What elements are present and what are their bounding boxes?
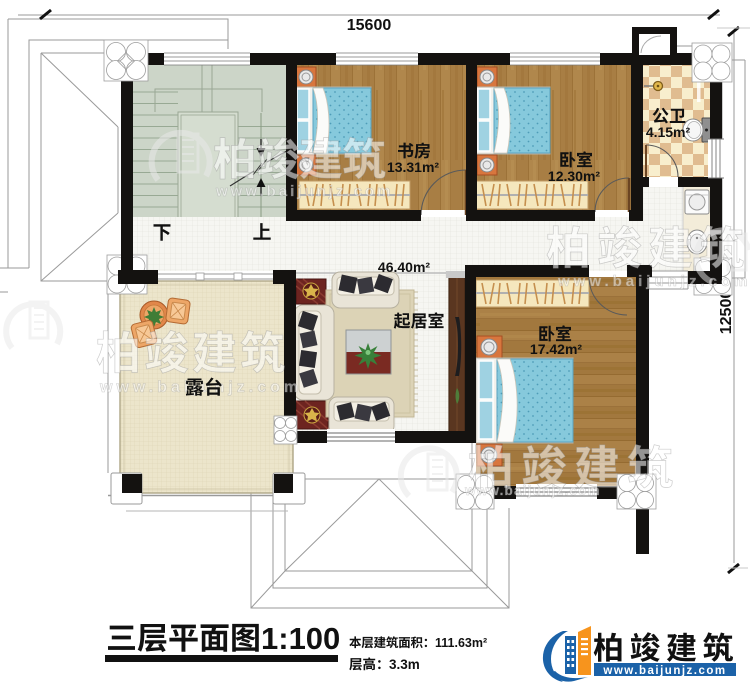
svg-text:www.baijunjz.com: www.baijunjz.com xyxy=(557,273,750,290)
svg-text:1:100: 1:100 xyxy=(261,621,340,656)
svg-text:www.baijunjz.com: www.baijunjz.com xyxy=(602,665,726,677)
svg-text:3.3m: 3.3m xyxy=(389,657,420,672)
svg-text:46.40m²: 46.40m² xyxy=(378,259,430,275)
svg-text:4.15m²: 4.15m² xyxy=(646,124,691,140)
svg-text:17.42m²: 17.42m² xyxy=(530,341,582,357)
svg-text:111.63m²: 111.63m² xyxy=(435,636,487,650)
svg-text:12500: 12500 xyxy=(718,290,735,335)
svg-text:www.baijunjz.com: www.baijunjz.com xyxy=(464,483,601,498)
svg-text:12.30m²: 12.30m² xyxy=(548,168,600,184)
svg-text:15600: 15600 xyxy=(347,17,392,34)
svg-text:13.31m²: 13.31m² xyxy=(387,159,439,175)
svg-text:www.baijunjz.com: www.baijunjz.com xyxy=(215,183,393,200)
